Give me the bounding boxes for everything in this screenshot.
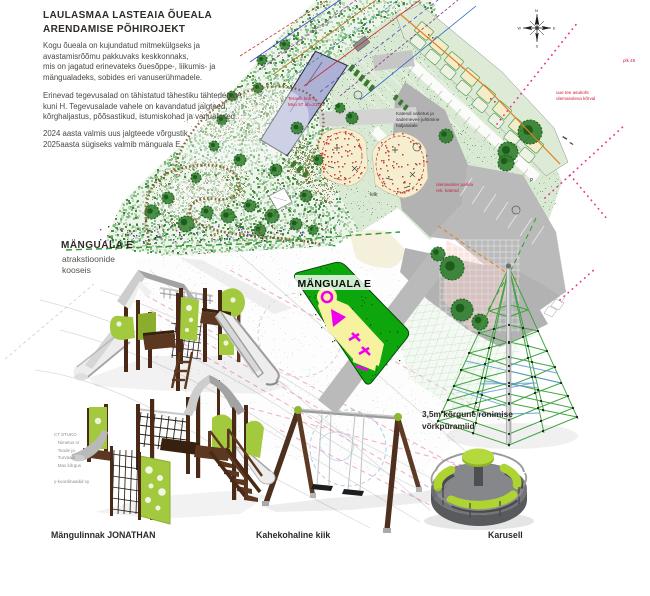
- svg-text:W: W: [518, 27, 522, 31]
- svg-text:MÄNGUALA E: MÄNGUALA E: [298, 277, 372, 290]
- svg-text:Katendi vahetus ja: Katendi vahetus ja: [396, 111, 434, 116]
- svg-text:S: S: [536, 45, 539, 49]
- svg-text:plk 45: plk 45: [623, 58, 636, 63]
- svg-text:sademevee juhtimine: sademevee juhtimine: [396, 117, 440, 122]
- svg-text:rek. katend: rek. katend: [436, 188, 459, 193]
- svg-text:E: E: [553, 27, 556, 31]
- svg-text:olemasoleva kõrval: olemasoleva kõrval: [556, 96, 595, 101]
- svg-text:N: N: [535, 8, 538, 13]
- svg-text:kiik: kiik: [370, 192, 378, 198]
- svg-text:uue tee asukoht: uue tee asukoht: [556, 90, 589, 95]
- svg-text:Muu 57 ab=21.70: Muu 57 ab=21.70: [288, 102, 324, 107]
- svg-text:olemasolev parkla: olemasolev parkla: [436, 182, 473, 187]
- svg-text:Teravik krdt 2: Teravik krdt 2: [288, 96, 316, 101]
- svg-text:haljasalale: haljasalale: [396, 123, 418, 128]
